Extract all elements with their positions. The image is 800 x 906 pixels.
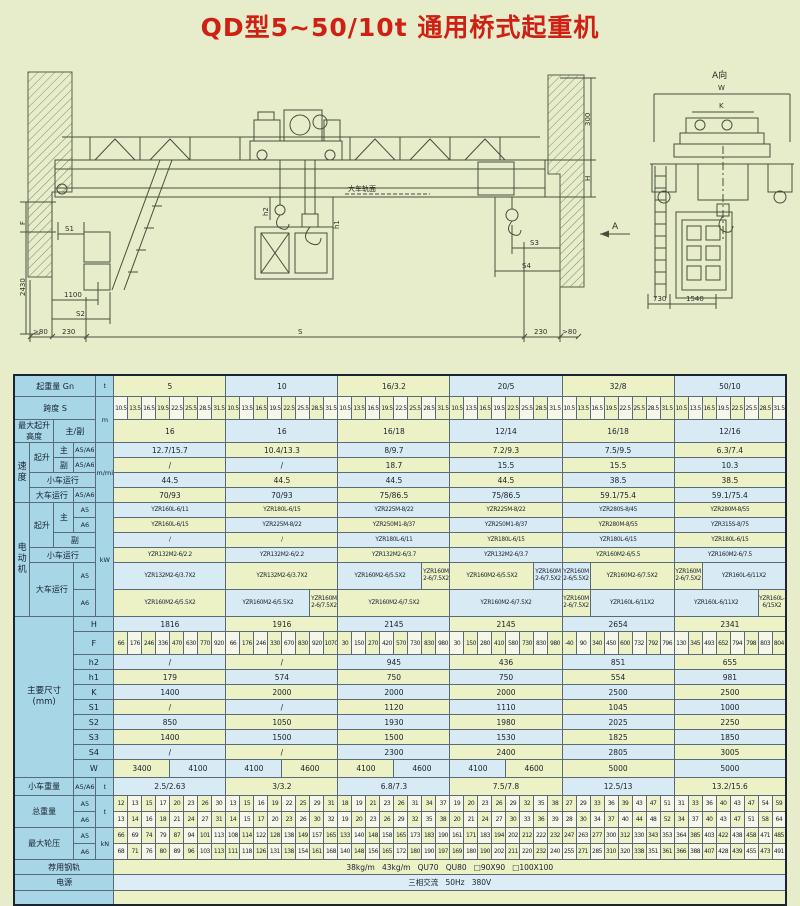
unit-label: m — [96, 397, 114, 443]
table-row: 电动机起升主A5kWYZR160L-6/11YZR180L-6/15YZR225… — [14, 503, 786, 518]
data-subcell: 10.5 — [338, 397, 352, 420]
data-subcell: 485 — [772, 828, 786, 844]
dim-s1-label: S1 — [65, 225, 74, 233]
data-subcell: 80 — [156, 844, 170, 860]
data-cell: 3005 — [674, 745, 786, 760]
rail-label: 荐用钢轨 — [14, 860, 114, 875]
data-subcell: 118 — [240, 844, 254, 860]
data-subcell: 830 — [534, 632, 548, 655]
data-subcell: 54 — [758, 796, 772, 812]
data-subcell: 28.5 — [758, 397, 772, 420]
dim-f-label: F — [19, 221, 27, 225]
data-cell: 4600 — [282, 760, 338, 778]
data-subcell: 32 — [520, 796, 534, 812]
view-a-label: A向 — [712, 69, 727, 81]
data-cell: / — [226, 458, 338, 473]
data-cell: 1400 — [114, 685, 226, 700]
page-title: QD型5~50/10t 通用桥式起重机 — [0, 0, 800, 42]
dim-2430-label: 2430 — [19, 278, 27, 296]
dim-1540-label: 1540 — [686, 295, 704, 303]
data-cell: 5000 — [562, 760, 674, 778]
table-row: 最大起升高度主/副161616/1812/1416/1812/16 — [14, 420, 786, 443]
table-row: F661762463364706307709206617624633067083… — [14, 632, 786, 655]
data-cell: / — [226, 700, 338, 715]
data-subcell: 66 — [114, 828, 128, 844]
data-subcell: 40 — [618, 812, 632, 828]
data-subcell: 240 — [548, 844, 562, 860]
data-subcell: 34 — [674, 812, 688, 828]
dim-k-label: K — [719, 102, 724, 110]
data-subcell: 51 — [744, 812, 758, 828]
data-subcell: 28.5 — [422, 397, 436, 420]
data-subcell: 156 — [366, 844, 380, 860]
data-subcell: 150 — [352, 632, 366, 655]
row-label: 小车运行 — [30, 473, 96, 488]
data-subcell: 470 — [170, 632, 184, 655]
data-subcell: 407 — [702, 844, 716, 860]
table-row: 小车运行YZR132M2-6/2.2YZR132M2-6/2.2YZR132M2… — [14, 548, 786, 563]
data-subcell: 157 — [310, 828, 324, 844]
data-subcell: 428 — [716, 844, 730, 860]
data-subcell: 126 — [254, 844, 268, 860]
data-cell: YZR160M2-6/7.5X2 — [562, 590, 590, 617]
row-label: A6 — [74, 590, 96, 617]
data-cell: 16/3.2 — [338, 375, 450, 397]
data-subcell: 183 — [422, 828, 436, 844]
data-subcell: 320 — [618, 844, 632, 860]
data-subcell: 26 — [492, 796, 506, 812]
unit-label: kW — [96, 503, 114, 617]
data-subcell: 13.5 — [576, 397, 590, 420]
data-cell: 2250 — [674, 715, 786, 730]
data-subcell: 26 — [296, 812, 310, 828]
data-cell: 2805 — [562, 745, 674, 760]
data-subcell: 176 — [240, 632, 254, 655]
data-subcell: 154 — [296, 844, 310, 860]
data-cell: 2500 — [674, 685, 786, 700]
data-subcell: 103 — [198, 844, 212, 860]
data-subcell: 168 — [324, 844, 338, 860]
data-cell: 8/9.7 — [338, 443, 450, 458]
data-cell: YZR250M1-8/37 — [338, 518, 450, 533]
data-cell: YZR280S-8/45 — [562, 503, 674, 518]
trolley-weight-label: 小车重量 — [14, 778, 74, 796]
data-subcell: 131 — [268, 844, 282, 860]
data-cell: 38.5 — [674, 473, 786, 488]
data-subcell: 194 — [492, 828, 506, 844]
data-subcell: 22.5 — [170, 397, 184, 420]
data-subcell: 20 — [450, 812, 464, 828]
data-subcell: 20 — [268, 812, 282, 828]
data-subcell: 343 — [646, 828, 660, 844]
data-subcell: 52 — [660, 812, 674, 828]
data-subcell: 133 — [338, 828, 352, 844]
data-subcell: 17 — [156, 796, 170, 812]
data-subcell: -40 — [562, 632, 576, 655]
table-row: 副A5/A6//18.715.515.510.3 — [14, 458, 786, 473]
data-cell: 2500 — [562, 685, 674, 700]
data-subcell: 20 — [464, 796, 478, 812]
data-subcell: 29 — [394, 812, 408, 828]
data-subcell: 16.5 — [590, 397, 604, 420]
table-row: K140020002000200025002500 — [14, 685, 786, 700]
data-subcell: 28.5 — [198, 397, 212, 420]
data-cell: 436 — [450, 655, 562, 670]
unit-label: kN — [96, 828, 114, 860]
data-subcell: 19 — [450, 796, 464, 812]
data-subcell: 220 — [520, 844, 534, 860]
data-subcell: 202 — [506, 828, 520, 844]
data-cell: 2000 — [338, 685, 450, 700]
data-cell: 32/8 — [562, 375, 674, 397]
data-subcell: 51 — [660, 796, 674, 812]
data-subcell: 30 — [506, 812, 520, 828]
data-cell: YZR160L-6/11 — [114, 503, 226, 518]
data-cell: 945 — [338, 655, 450, 670]
total-weight-label: 总重量 — [14, 796, 74, 828]
table-row: h2//945436851655 — [14, 655, 786, 670]
data-subcell: 148 — [352, 844, 366, 860]
data-subcell: 13 — [114, 812, 128, 828]
data-subcell: 108 — [226, 828, 240, 844]
data-cell: 3/3.2 — [226, 778, 338, 796]
data-cell: 12/14 — [450, 420, 562, 443]
data-cell: YZR132M2-6/3.7 — [338, 548, 450, 563]
data-cell: 2300 — [338, 745, 450, 760]
data-subcell: 113 — [212, 844, 226, 860]
data-subcell: 158 — [380, 828, 394, 844]
data-subcell: 31 — [408, 796, 422, 812]
data-subcell: 28 — [562, 812, 576, 828]
data-subcell: 491 — [772, 844, 786, 860]
row-label: A5 — [74, 796, 96, 812]
data-subcell: 285 — [590, 844, 604, 860]
data-subcell: 33 — [520, 812, 534, 828]
data-subcell: 222 — [534, 828, 548, 844]
data-cell: 70/93 — [114, 488, 226, 503]
data-subcell: 455 — [744, 844, 758, 860]
data-subcell: 190 — [478, 844, 492, 860]
aux-hook — [275, 160, 289, 229]
table-row: 起重量 Gnt51016/3.220/532/850/10 — [14, 375, 786, 397]
data-subcell: 26 — [198, 796, 212, 812]
data-cell: 1045 — [562, 700, 674, 715]
data-subcell: 438 — [730, 828, 744, 844]
data-cell: YZR180L-6/15 — [226, 503, 338, 518]
data-subcell: 212 — [520, 828, 534, 844]
data-subcell: 19.5 — [716, 397, 730, 420]
rail-value: 38kg/m 43kg/m QU70 QU80 □90X90 □100X100 — [114, 860, 786, 875]
data-subcell: 730 — [408, 632, 422, 655]
trolley — [250, 110, 342, 160]
motor-section-label: 电动机 — [14, 503, 30, 617]
data-subcell: 23 — [282, 812, 296, 828]
data-cell: 4600 — [394, 760, 450, 778]
data-subcell: 422 — [716, 828, 730, 844]
data-subcell: 161 — [450, 828, 464, 844]
data-cell: YZR160M2-6/7.5X2 — [338, 590, 450, 617]
data-subcell: 263 — [576, 828, 590, 844]
data-subcell: 271 — [576, 844, 590, 860]
data-subcell: 25.5 — [632, 397, 646, 420]
data-subcell: 16.5 — [142, 397, 156, 420]
table-row: S3140015001500153018251850 — [14, 730, 786, 745]
data-subcell: 420 — [380, 632, 394, 655]
table-row: 速度起升主A5/A6m/min12.7/15.710.4/13.38/9.77.… — [14, 443, 786, 458]
data-subcell: 111 — [226, 844, 240, 860]
data-subcell: 792 — [646, 632, 660, 655]
data-subcell: 22.5 — [394, 397, 408, 420]
data-cell: 16/18 — [562, 420, 674, 443]
data-cell: 2145 — [450, 617, 562, 632]
data-subcell: 25.5 — [520, 397, 534, 420]
data-cell: / — [114, 533, 226, 548]
dim-300-label: 300 — [584, 113, 592, 126]
data-subcell: 16 — [254, 796, 268, 812]
data-cell: YZR132M2-6/3.7 — [450, 548, 562, 563]
data-cell: YZR160M2-6/5.5X2 — [338, 563, 422, 590]
data-subcell: 25.5 — [744, 397, 758, 420]
data-subcell: 58 — [758, 812, 772, 828]
data-cell: 44.5 — [114, 473, 226, 488]
data-cell: YZR132M2-6/2.2 — [226, 548, 338, 563]
data-subcell: 28.5 — [310, 397, 324, 420]
data-subcell: 44 — [632, 812, 646, 828]
data-subcell: 12 — [114, 796, 128, 812]
row-label: 主 — [54, 443, 74, 458]
table-row: 跨度 Sm10.513.516.519.522.525.528.531.510.… — [14, 397, 786, 420]
data-subcell: 23 — [184, 796, 198, 812]
data-cell: 16/18 — [338, 420, 450, 443]
data-subcell: 232 — [534, 844, 548, 860]
data-cell: 851 — [562, 655, 674, 670]
data-subcell: 96 — [184, 844, 198, 860]
row-label: 主 — [54, 503, 74, 533]
dims-section-label: 主要尺寸(mm) — [14, 617, 74, 778]
data-subcell: 211 — [506, 844, 520, 860]
data-subcell: 176 — [128, 632, 142, 655]
data-subcell: 43 — [730, 796, 744, 812]
power-value: 三相交流 50Hz 380V — [114, 875, 786, 891]
data-cell: 1825 — [562, 730, 674, 745]
data-subcell: 770 — [198, 632, 212, 655]
data-cell: 5 — [114, 375, 226, 397]
row-label: 起升 — [30, 443, 54, 473]
dim-row-label: W — [74, 760, 114, 778]
crane-drawing: F 2430 S1 1100 S2 >80 230 S 230 >80 h2 h… — [0, 42, 800, 374]
data-subcell: 10.5 — [562, 397, 576, 420]
data-cell: 16 — [114, 420, 226, 443]
data-subcell: 33 — [688, 796, 702, 812]
dim-h2-label: h2 — [262, 207, 270, 216]
data-subcell: 450 — [604, 632, 618, 655]
row-label: A5 — [74, 828, 96, 844]
data-subcell: 300 — [604, 828, 618, 844]
data-subcell: 35 — [534, 796, 548, 812]
data-cell: 59.1/75.4 — [674, 488, 786, 503]
data-cell: YZR132M2-6/3.7X2 — [226, 563, 338, 590]
data-subcell: 670 — [282, 632, 296, 655]
data-subcell: 71 — [128, 844, 142, 860]
unit-label: m/min — [96, 443, 114, 503]
data-subcell: 10.5 — [450, 397, 464, 420]
data-subcell: 25 — [296, 796, 310, 812]
data-subcell: 36 — [534, 812, 548, 828]
data-subcell: 138 — [282, 844, 296, 860]
table-row — [14, 891, 786, 906]
speed-section-label: 速度 — [14, 443, 30, 503]
data-subcell: 351 — [646, 844, 660, 860]
data-subcell: 20 — [352, 812, 366, 828]
table-row: S285010501930198020252250 — [14, 715, 786, 730]
unit-label: t — [96, 375, 114, 397]
data-subcell: 439 — [730, 844, 744, 860]
spec-table: 起重量 Gnt51016/3.220/532/850/10跨度 Sm10.513… — [13, 374, 787, 906]
data-subcell: 361 — [660, 844, 674, 860]
end-view — [648, 94, 794, 309]
bridge-girder — [55, 160, 545, 197]
data-cell: 44.5 — [450, 473, 562, 488]
lift-height-label: 最大起升高度 — [14, 420, 54, 443]
data-subcell: 19 — [268, 796, 282, 812]
data-cell: YZR160L-6/15 — [114, 518, 226, 533]
data-subcell: 330 — [632, 828, 646, 844]
row-label: A5/A6 — [74, 458, 96, 473]
data-subcell: 47 — [744, 796, 758, 812]
data-subcell: 27 — [198, 812, 212, 828]
data-cell: 75/86.5 — [450, 488, 562, 503]
dim-row-label: S3 — [74, 730, 114, 745]
table-row: A668717680899610311311111812613113815416… — [14, 844, 786, 860]
data-cell: 16 — [226, 420, 338, 443]
table-row: S1//1120111010451000 — [14, 700, 786, 715]
data-subcell: 13 — [128, 796, 142, 812]
data-subcell: 38 — [436, 812, 450, 828]
data-cell: 179 — [114, 670, 226, 685]
data-cell: 7.5/7.8 — [450, 778, 562, 796]
data-cell: 50/10 — [674, 375, 786, 397]
table-row: 主要尺寸(mm)H181619162145214526542341 — [14, 617, 786, 632]
data-cell: YZR180L-6/15 — [450, 533, 562, 548]
data-cell: 1120 — [338, 700, 450, 715]
data-subcell: 830 — [296, 632, 310, 655]
data-cell: YZR225M-8/22 — [226, 518, 338, 533]
rail-surface-label: 大车轨面 — [348, 184, 376, 193]
data-subcell: 87 — [170, 828, 184, 844]
left-wall-hatch — [28, 72, 72, 277]
data-cell: YZR280M-8/55 — [674, 503, 786, 518]
data-cell: YZR160L-6/11X2 — [702, 563, 786, 590]
data-subcell: 471 — [758, 828, 772, 844]
elevation-view — [20, 72, 630, 342]
data-cell: / — [226, 533, 338, 548]
data-subcell: 803 — [758, 632, 772, 655]
data-subcell: 28.5 — [646, 397, 660, 420]
table-row: 小车重量A5/A6t2.5/2.633/3.26.8/7.37.5/7.812.… — [14, 778, 786, 796]
power-label: 电源 — [14, 875, 114, 891]
data-subcell: 980 — [436, 632, 450, 655]
data-cell: 574 — [226, 670, 338, 685]
data-subcell: 30 — [338, 632, 352, 655]
data-subcell: 16.5 — [254, 397, 268, 420]
data-subcell: 36 — [702, 796, 716, 812]
data-cell: 1050 — [226, 715, 338, 730]
data-subcell: 366 — [674, 844, 688, 860]
row-label: A5 — [74, 503, 96, 518]
data-subcell: 13.5 — [464, 397, 478, 420]
data-subcell: 13.5 — [128, 397, 142, 420]
data-subcell: 570 — [394, 632, 408, 655]
data-subcell: 59 — [772, 796, 786, 812]
data-cell: 10.3 — [674, 458, 786, 473]
data-subcell: 37 — [604, 812, 618, 828]
data-subcell: 39 — [618, 796, 632, 812]
data-subcell: 130 — [674, 632, 688, 655]
data-subcell: 338 — [632, 844, 646, 860]
data-cell: YZR160M2-6/5.5 — [562, 548, 674, 563]
dim-1100-label: 1100 — [64, 291, 82, 299]
data-subcell: 312 — [618, 828, 632, 844]
data-subcell: 19.5 — [604, 397, 618, 420]
span-label: 跨度 S — [14, 397, 96, 420]
data-cell: 1930 — [338, 715, 450, 730]
data-subcell: 128 — [268, 828, 282, 844]
data-subcell: 630 — [184, 632, 198, 655]
data-cell: YZR160M2-6/7.5X2 — [422, 563, 450, 590]
data-cell: 12.5/13 — [562, 778, 674, 796]
data-cell: / — [114, 745, 226, 760]
data-subcell: 140 — [352, 828, 366, 844]
data-subcell: 31 — [212, 812, 226, 828]
data-subcell: 69 — [128, 828, 142, 844]
data-cell: YZR225M-8/22 — [450, 503, 562, 518]
data-cell: 38.5 — [562, 473, 674, 488]
dim-gt80-left: >80 — [33, 328, 48, 336]
dim-w-label: W — [718, 84, 725, 92]
section-a-label: A — [612, 222, 619, 232]
data-cell: 15.5 — [562, 458, 674, 473]
data-cell: 6.3/7.4 — [674, 443, 786, 458]
data-cell: 44.5 — [338, 473, 450, 488]
data-cell: 6.8/7.3 — [338, 778, 450, 796]
row-label: 小车运行 — [30, 548, 96, 563]
dim-row-label: S4 — [74, 745, 114, 760]
data-subcell: 345 — [688, 632, 702, 655]
data-subcell: 31.5 — [212, 397, 226, 420]
dim-row-label: S2 — [74, 715, 114, 730]
data-cell: 70/93 — [226, 488, 338, 503]
data-subcell: 202 — [492, 844, 506, 860]
table-row: 荐用钢轨38kg/m 43kg/m QU70 QU80 □90X90 □100X… — [14, 860, 786, 875]
dim-row-label: K — [74, 685, 114, 700]
row-label: 起升 — [30, 503, 54, 548]
data-cell: 20/5 — [450, 375, 562, 397]
row-label: A6 — [74, 812, 96, 828]
data-cell: YZR160M2-6/7.5X2 — [674, 563, 702, 590]
data-cell: / — [226, 745, 338, 760]
data-subcell: 27 — [562, 796, 576, 812]
data-cell: 10.4/13.3 — [226, 443, 338, 458]
data-subcell: 31 — [324, 796, 338, 812]
data-subcell: 16.5 — [478, 397, 492, 420]
data-cell: YZR280M-8/55 — [562, 518, 674, 533]
data-subcell: 14 — [226, 812, 240, 828]
data-cell: 2000 — [450, 685, 562, 700]
data-cell: 1400 — [114, 730, 226, 745]
row-label: A5/A6 — [74, 488, 96, 503]
data-subcell: 31.5 — [660, 397, 674, 420]
data-cell: 1000 — [674, 700, 786, 715]
